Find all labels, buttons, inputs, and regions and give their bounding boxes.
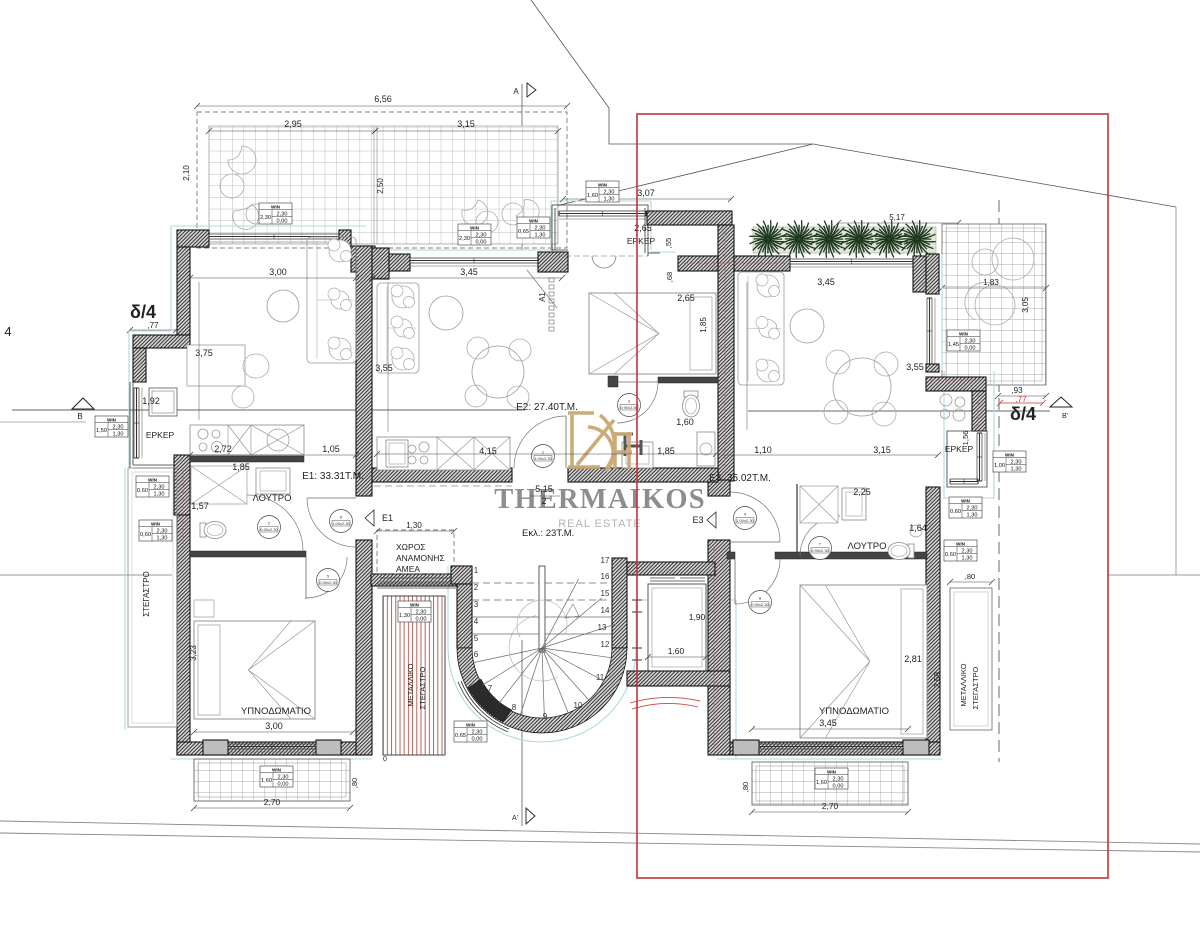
svg-text:8: 8 [512, 703, 517, 712]
svg-text:2,72: 2,72 [214, 444, 232, 454]
svg-text:5,17: 5,17 [889, 213, 905, 222]
svg-text:0,60: 0,60 [945, 552, 956, 558]
svg-text:ΕΡΚΕΡ: ΕΡΚΕΡ [627, 236, 656, 246]
svg-text:ΣΤΕΓΑΣΤΡΟ: ΣΤΕΓΑΣΤΡΟ [142, 571, 151, 617]
svg-text:0.90x2.30: 0.90x2.30 [260, 527, 278, 532]
svg-text:,93: ,93 [1011, 386, 1023, 395]
svg-text:2,81: 2,81 [904, 654, 922, 664]
svg-text:E1: 33.31Τ.Μ.: E1: 33.31Τ.Μ. [302, 471, 364, 482]
svg-text:WIN: WIN [272, 767, 282, 772]
svg-text:,80: ,80 [350, 778, 359, 788]
svg-text:2,30: 2,30 [416, 610, 427, 616]
svg-text:2,30: 2,30 [476, 233, 487, 239]
svg-text:ΣΤΕΓΑΣΤΡΟ: ΣΤΕΓΑΣΤΡΟ [971, 666, 980, 709]
svg-text:11: 11 [596, 673, 605, 682]
svg-text:17: 17 [601, 556, 610, 565]
svg-text:2,65: 2,65 [677, 293, 695, 303]
svg-text:1,05: 1,05 [322, 444, 340, 454]
svg-text:3: 3 [474, 600, 479, 609]
svg-text:2,30: 2,30 [535, 226, 546, 232]
svg-text:2,30: 2,30 [965, 339, 976, 345]
svg-text:0,65: 0,65 [455, 733, 466, 739]
svg-text:7: 7 [488, 684, 493, 693]
svg-text:1,90: 1,90 [689, 612, 706, 622]
svg-text:3,15: 3,15 [873, 445, 891, 455]
svg-text:2: 2 [474, 583, 479, 592]
svg-text:3,75: 3,75 [195, 348, 213, 358]
svg-text:1,85: 1,85 [657, 446, 675, 456]
svg-text:13: 13 [598, 623, 607, 632]
svg-text:ΛΟΥΤΡΟ: ΛΟΥΤΡΟ [252, 493, 291, 504]
svg-text:2,50: 2,50 [376, 178, 385, 194]
svg-text:,68: ,68 [665, 272, 674, 282]
svg-text:1,60: 1,60 [676, 417, 694, 427]
svg-text:2: 2 [541, 496, 546, 506]
svg-text:Εκλ.: 23Τ.Μ.: Εκλ.: 23Τ.Μ. [522, 528, 574, 539]
svg-text:2,30: 2,30 [277, 212, 288, 218]
svg-text:1,10: 1,10 [754, 445, 772, 455]
svg-text:2,30: 2,30 [472, 730, 483, 736]
svg-text:0,00: 0,00 [833, 784, 844, 790]
svg-text:0,60: 0,60 [137, 488, 148, 494]
svg-text:1,00: 1,00 [994, 463, 1005, 469]
svg-text:WIN: WIN [961, 498, 971, 503]
svg-text:0,00: 0,00 [416, 617, 427, 623]
svg-text:1,30: 1,30 [962, 556, 973, 562]
svg-text:WIN: WIN [151, 521, 161, 526]
svg-text:E3: E3 [692, 515, 703, 525]
svg-text:4: 4 [4, 324, 11, 339]
svg-text:2,30: 2,30 [113, 425, 124, 431]
svg-text:2,30: 2,30 [459, 236, 470, 242]
svg-text:1,30: 1,30 [406, 521, 422, 530]
svg-text:3,23: 3,23 [189, 645, 198, 661]
svg-text:1,30: 1,30 [1011, 467, 1022, 473]
svg-text:3,15: 3,15 [457, 119, 475, 129]
svg-text:3,55: 3,55 [375, 363, 393, 373]
svg-text:0,60: 0,60 [140, 532, 151, 538]
svg-text:WIN: WIN [529, 218, 539, 223]
svg-text:1,45: 1,45 [948, 342, 959, 348]
svg-text:B: B [77, 412, 82, 421]
svg-text:ΕΡΚΕΡ: ΕΡΚΕΡ [146, 430, 175, 440]
svg-text:0.90x2.30: 0.90x2.30 [811, 548, 829, 553]
svg-text:WIN: WIN [959, 331, 969, 336]
svg-text:WIN: WIN [956, 541, 966, 546]
svg-text:4: 4 [474, 617, 479, 626]
svg-text:,77: ,77 [1015, 395, 1027, 404]
svg-text:δ/4: δ/4 [1010, 404, 1036, 424]
svg-text:2,10: 2,10 [182, 165, 191, 181]
svg-text:ΜΕΤΑΛΛΙΚΟ: ΜΕΤΑΛΛΙΚΟ [959, 663, 968, 706]
svg-text:ΑΝΑΜΟΝΗΣ: ΑΝΑΜΟΝΗΣ [396, 553, 445, 563]
svg-text:ΧΩΡΟΣ: ΧΩΡΟΣ [396, 542, 426, 552]
svg-text:2,30: 2,30 [967, 506, 978, 512]
svg-text:3,45: 3,45 [819, 718, 837, 728]
svg-text:3,45: 3,45 [817, 277, 835, 287]
svg-text:E1: E1 [382, 513, 393, 523]
svg-text:1.00x2.30: 1.00x2.30 [332, 521, 350, 526]
svg-text:WIN: WIN [598, 182, 608, 187]
svg-text:2,70: 2,70 [822, 801, 839, 811]
svg-text:1,50: 1,50 [96, 428, 107, 434]
svg-text:WIN: WIN [271, 204, 281, 209]
svg-text:6,56: 6,56 [374, 94, 392, 104]
svg-text:WIN: WIN [466, 722, 476, 727]
svg-text:0,00: 0,00 [965, 346, 976, 352]
svg-text:0.90x2.30: 0.90x2.30 [620, 405, 638, 410]
svg-text:1.00x2.30: 1.00x2.30 [736, 518, 754, 523]
svg-text:0.90x2.30: 0.90x2.30 [319, 580, 337, 585]
svg-text:0.90x2.30: 0.90x2.30 [751, 602, 769, 607]
svg-text:12: 12 [601, 640, 610, 649]
svg-text:2,70: 2,70 [264, 797, 281, 807]
svg-text:1,30: 1,30 [967, 513, 978, 519]
svg-text:1,60: 1,60 [587, 193, 598, 199]
svg-text:0,65: 0,65 [518, 229, 529, 235]
svg-text:2,95: 2,95 [284, 119, 302, 129]
svg-text:0,00: 0,00 [476, 240, 487, 246]
svg-text:2,30: 2,30 [962, 549, 973, 555]
svg-text:1,60: 1,60 [816, 780, 827, 786]
svg-text:5,15: 5,15 [535, 484, 553, 494]
svg-text:WIN: WIN [827, 769, 837, 774]
svg-text:1,64: 1,64 [909, 523, 927, 533]
svg-text:B': B' [1062, 413, 1068, 420]
svg-text:16: 16 [601, 572, 610, 581]
svg-text:1,60: 1,60 [668, 646, 685, 656]
svg-text:1,30: 1,30 [604, 197, 615, 203]
svg-text:A: A [513, 87, 519, 96]
svg-text:2,30: 2,30 [157, 529, 168, 535]
svg-text:14: 14 [601, 606, 610, 615]
svg-text:4,15: 4,15 [479, 446, 497, 456]
svg-text:1,60: 1,60 [261, 778, 272, 784]
svg-text:5: 5 [474, 634, 479, 643]
svg-text:10: 10 [574, 701, 583, 710]
svg-text:A': A' [512, 815, 518, 822]
svg-text:9: 9 [543, 712, 548, 721]
svg-text:ΥΠΝΟΔΩΜΑΤΙΟ: ΥΠΝΟΔΩΜΑΤΙΟ [819, 706, 889, 717]
svg-text:WIN: WIN [470, 225, 480, 230]
svg-text:ΥΠΝΟΔΩΜΑΤΙΟ: ΥΠΝΟΔΩΜΑΤΙΟ [241, 706, 311, 717]
svg-text:1,92: 1,92 [142, 396, 160, 406]
svg-text:1.00x2.30: 1.00x2.30 [534, 456, 552, 461]
svg-text:1,83: 1,83 [983, 278, 999, 287]
svg-text:2,30: 2,30 [278, 775, 289, 781]
svg-text:3,07: 3,07 [637, 188, 655, 198]
svg-text:0,00: 0,00 [277, 219, 288, 225]
svg-text:WIN: WIN [107, 417, 117, 422]
svg-text:1,30: 1,30 [399, 613, 410, 619]
svg-text:2,30: 2,30 [260, 215, 271, 221]
svg-text:,80: ,80 [741, 782, 750, 792]
svg-text:ΣΤΕΓΑΣΤΡΟ: ΣΤΕΓΑΣΤΡΟ [418, 666, 427, 709]
svg-text:3,00: 3,00 [265, 721, 283, 731]
svg-text:WIN: WIN [1005, 452, 1015, 457]
svg-text:3,05: 3,05 [1021, 297, 1030, 313]
svg-text:E2: 27.40Τ.Μ.: E2: 27.40Τ.Μ. [516, 402, 578, 413]
svg-text:ΜΕΤΑΛΛΙΚΟ: ΜΕΤΑΛΛΙΚΟ [406, 663, 415, 706]
svg-text:,80: ,80 [965, 572, 975, 581]
svg-text:ΑΜΕΑ: ΑΜΕΑ [396, 564, 420, 574]
svg-text:6: 6 [474, 650, 479, 659]
svg-text:0,00: 0,00 [472, 737, 483, 743]
svg-text:0: 0 [383, 756, 387, 763]
svg-text:2,30: 2,30 [1011, 460, 1022, 466]
svg-text:2,25: 2,25 [853, 487, 871, 497]
svg-text:δ/4: δ/4 [130, 302, 156, 322]
svg-text:1,30: 1,30 [157, 536, 168, 542]
svg-text:2,30: 2,30 [154, 485, 165, 491]
svg-text:,77: ,77 [147, 321, 159, 330]
svg-text:THERMAIKOS: THERMAIKOS [494, 484, 706, 515]
svg-text:1,85: 1,85 [699, 317, 708, 333]
svg-text:3,55: 3,55 [906, 362, 924, 372]
svg-text:1,85: 1,85 [232, 462, 250, 472]
svg-text:3,00: 3,00 [269, 267, 287, 277]
svg-text:2,30: 2,30 [833, 777, 844, 783]
svg-text:WIN: WIN [148, 477, 158, 482]
svg-text:1,56: 1,56 [961, 431, 970, 446]
svg-text:WIN: WIN [410, 602, 420, 607]
svg-text:ΛΟΥΤΡΟ: ΛΟΥΤΡΟ [847, 541, 886, 552]
svg-text:2,30: 2,30 [604, 190, 615, 196]
svg-text:1: 1 [474, 566, 479, 575]
svg-text:E3: 35.02Τ.Μ.: E3: 35.02Τ.Μ. [709, 473, 771, 484]
svg-text:15: 15 [601, 589, 610, 598]
svg-text:1,57: 1,57 [191, 501, 209, 511]
svg-text:,55: ,55 [664, 238, 673, 248]
svg-text:1,30: 1,30 [535, 233, 546, 239]
svg-text:2,59: 2,59 [933, 672, 942, 688]
svg-text:1,30: 1,30 [113, 432, 124, 438]
svg-text:1,30: 1,30 [154, 492, 165, 498]
svg-text:3,45: 3,45 [460, 267, 478, 277]
svg-text:0,00: 0,00 [278, 782, 289, 788]
svg-text:0,60: 0,60 [950, 509, 961, 515]
